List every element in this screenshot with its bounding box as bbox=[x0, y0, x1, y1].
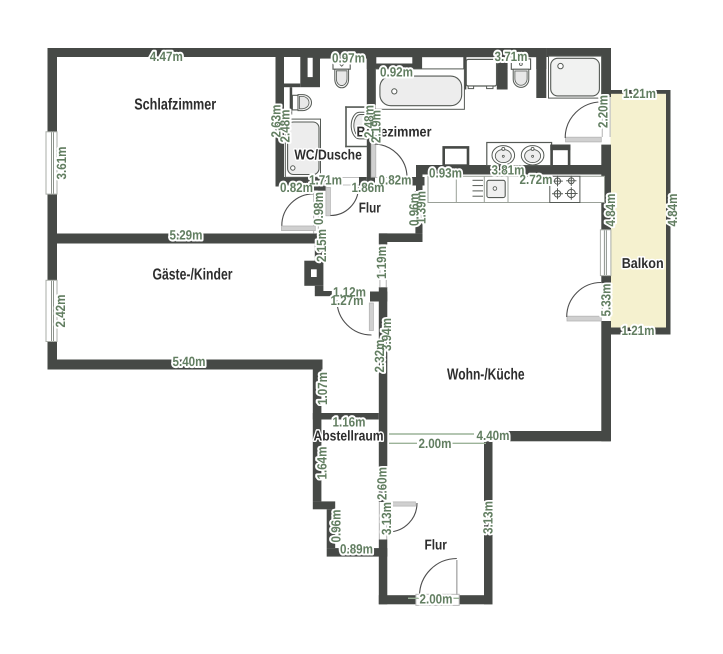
svg-text:Balkon: Balkon bbox=[622, 256, 664, 272]
svg-text:0.82m: 0.82m bbox=[379, 172, 412, 187]
svg-text:3.94m: 3.94m bbox=[379, 318, 394, 351]
svg-text:4.47m: 4.47m bbox=[150, 49, 183, 64]
svg-text:5.29m: 5.29m bbox=[170, 227, 203, 242]
svg-text:2.00m: 2.00m bbox=[419, 436, 452, 451]
svg-text:4.84m: 4.84m bbox=[603, 193, 618, 226]
svg-text:1.39m: 1.39m bbox=[414, 191, 429, 224]
svg-text:1.21m: 1.21m bbox=[623, 86, 656, 101]
svg-text:2.48m: 2.48m bbox=[277, 109, 292, 142]
svg-text:0.82m: 0.82m bbox=[280, 180, 313, 195]
svg-text:WC/Dusche: WC/Dusche bbox=[294, 148, 362, 164]
svg-text:1.21m: 1.21m bbox=[622, 323, 655, 338]
svg-text:2.15m: 2.15m bbox=[314, 229, 329, 262]
svg-text:1.71m: 1.71m bbox=[309, 172, 342, 187]
svg-text:1.19m: 1.19m bbox=[374, 246, 389, 279]
svg-text:0.97m: 0.97m bbox=[332, 50, 365, 65]
svg-text:Schlafzimmer: Schlafzimmer bbox=[134, 96, 216, 113]
svg-text:5.40m: 5.40m bbox=[173, 354, 206, 369]
svg-text:0.93m: 0.93m bbox=[429, 165, 462, 180]
svg-text:2.72m: 2.72m bbox=[520, 172, 553, 187]
svg-text:0.89m: 0.89m bbox=[340, 541, 373, 556]
svg-text:3.61m: 3.61m bbox=[54, 146, 69, 179]
svg-text:Flur: Flur bbox=[424, 538, 447, 554]
svg-text:2.42m: 2.42m bbox=[53, 294, 68, 327]
svg-text:2.20m: 2.20m bbox=[595, 95, 610, 128]
svg-text:3.13m: 3.13m bbox=[379, 502, 394, 535]
svg-text:Gäste-/Kinder: Gäste-/Kinder bbox=[152, 267, 232, 284]
svg-text:4.84m: 4.84m bbox=[665, 193, 680, 226]
svg-text:1.27m: 1.27m bbox=[331, 293, 364, 308]
svg-text:Abstellraum: Abstellraum bbox=[313, 429, 383, 445]
svg-text:Flur: Flur bbox=[359, 201, 381, 217]
svg-text:5.33m: 5.33m bbox=[598, 283, 613, 316]
svg-text:4.40m: 4.40m bbox=[477, 428, 510, 443]
svg-text:2.60m: 2.60m bbox=[374, 467, 389, 500]
svg-text:3.71m: 3.71m bbox=[495, 49, 528, 64]
svg-text:2.19m: 2.19m bbox=[368, 110, 383, 143]
svg-text:1.64m: 1.64m bbox=[314, 446, 329, 479]
svg-text:3.13m: 3.13m bbox=[480, 501, 495, 534]
svg-text:0.92m: 0.92m bbox=[380, 64, 413, 79]
svg-text:1.07m: 1.07m bbox=[315, 372, 330, 405]
svg-text:Wohn-/Küche: Wohn-/Küche bbox=[447, 366, 525, 383]
svg-text:0.98m: 0.98m bbox=[311, 192, 326, 225]
svg-text:2.00m: 2.00m bbox=[420, 591, 453, 606]
svg-text:1.16m: 1.16m bbox=[333, 414, 366, 429]
svg-text:0.96m: 0.96m bbox=[328, 509, 343, 542]
